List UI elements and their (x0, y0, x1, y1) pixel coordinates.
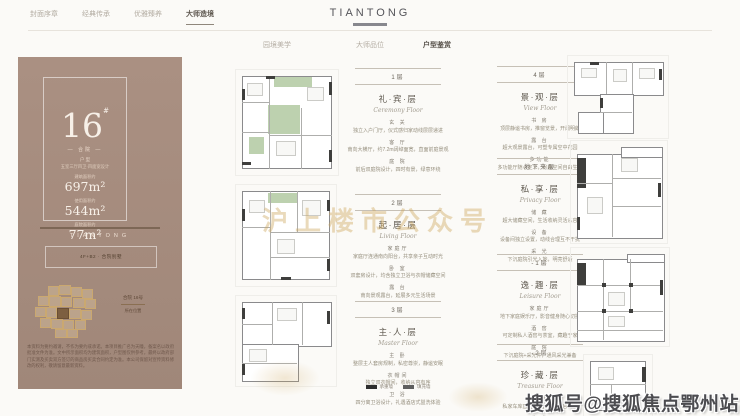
floorplan-b1 (577, 254, 663, 340)
gold-watermark: 沪上楼市公众号 (262, 201, 493, 238)
siteplan-caption: 合院 16号 所在位置 (112, 295, 154, 314)
nav-item-2[interactable]: 经典传承 (82, 9, 110, 25)
card-brand-text: TIANTONG (18, 233, 182, 239)
floor-name-cn: 礼·宾·层 (323, 93, 473, 105)
nav-item-3[interactable]: 优雅臻养 (134, 9, 162, 25)
siteplan-caption-line1: 合院 16号 (112, 295, 154, 301)
unit-type-desc: 五室三厅四卫·四面宽设计 (46, 164, 124, 170)
legend-swatch-infill (403, 385, 414, 389)
gold-watermark-flourish (448, 382, 508, 412)
gold-watermark-flourish-2 (250, 360, 320, 396)
legend-swatch-bearing (366, 385, 377, 389)
siteplan-caption-rule (121, 304, 145, 305)
card-divider (40, 227, 160, 229)
floor-block-1f: 1层 礼·宾·层 Ceremony Floor 玄 关独立入户门厅，仪式感归家动… (323, 68, 473, 173)
sohu-watermark: 搜狐号@搜狐焦点鄂州站 (525, 389, 739, 416)
tab-aesthetics[interactable]: 园境美学 (263, 40, 291, 50)
siteplan-unit16-highlight (57, 308, 69, 319)
floor-name-en: Master Floor (323, 340, 473, 347)
unit-spec-box: 4F+B2 · 合院别墅 (45, 246, 157, 268)
nav-item-1[interactable]: 封面序章 (30, 9, 58, 25)
unit-tag: — 合院 — (44, 146, 126, 153)
nav-item-4-active[interactable]: 大师造境 (186, 9, 214, 25)
floor-name-cn: 主·人·层 (323, 326, 473, 338)
tab-master[interactable]: 大师品位 (356, 40, 384, 50)
unit-card: 16# — 合院 — 户 型 五室三厅四卫·四面宽设计 建筑面积约 697m² … (18, 57, 182, 389)
floor-label: 1层 (323, 72, 473, 81)
floor-name-en: Ceremony Floor (323, 107, 473, 114)
unit-number-mark: # (103, 107, 109, 115)
brand-logo: TIANTONG (330, 7, 411, 19)
brand-logo-underline (353, 23, 387, 26)
floor-label: 3层 (323, 305, 473, 314)
legend-label-infill: 填充墙 (417, 384, 431, 390)
unit-number: 16# (44, 94, 126, 143)
floorplan-1f (242, 76, 332, 169)
siteplan-caption-line2: 所在位置 (112, 308, 154, 314)
floorplan-mezzanine (577, 147, 661, 237)
unit-type-label: 户 型 (44, 157, 126, 163)
area-value-built: 697m² (44, 180, 126, 194)
legend-label-bearing: 承重墙 (380, 384, 394, 390)
floorplan-4f (574, 62, 662, 132)
tab-floorplans-active[interactable]: 户型鉴赏 (423, 40, 451, 50)
header-divider (28, 30, 712, 31)
top-nav: 封面序章 经典传承 优雅臻养 大师造境 (30, 9, 214, 25)
page: 封面序章 经典传承 优雅臻养 大师造境 TIANTONG 园境美学 大师品位 户… (0, 0, 740, 416)
area-value-usable: 544m² (44, 204, 126, 218)
disclaimer-text: 本资料为要约邀请，不作为要约或承诺。本项目推广名为天瞳，备案名以政府批准文件为准… (27, 344, 174, 369)
unit-summary-box: 16# — 合院 — 户 型 五室三厅四卫·四面宽设计 建筑面积约 697m² … (43, 77, 127, 221)
siteplan-map (30, 285, 104, 337)
